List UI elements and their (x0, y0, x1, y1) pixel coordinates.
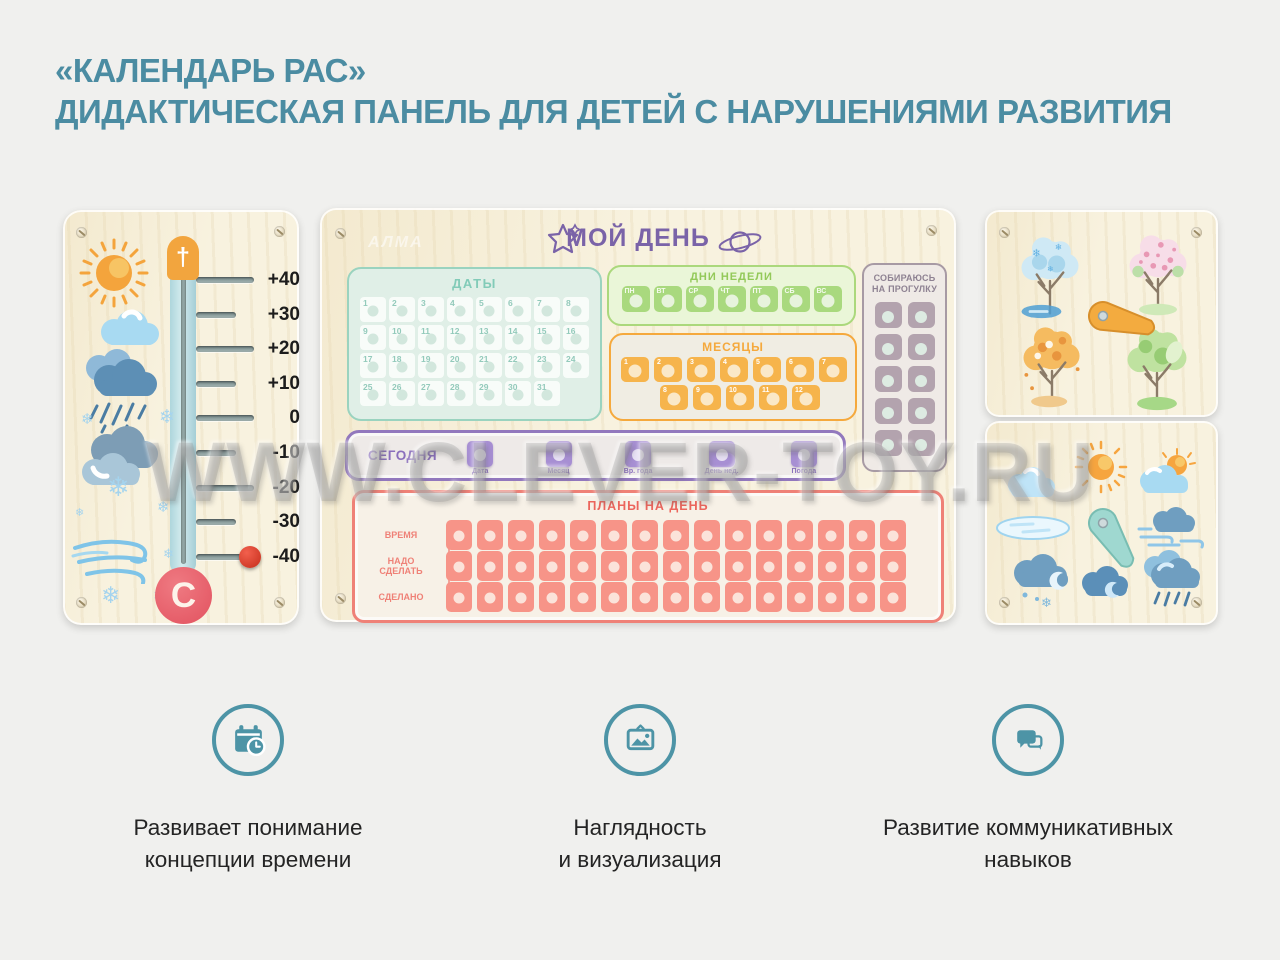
thermo-scale-label: +30 (254, 304, 300, 326)
date-cell[interactable]: 3 (418, 297, 444, 322)
date-cell[interactable]: 31 (534, 381, 560, 406)
peg-hole (882, 407, 894, 419)
date-cell[interactable]: 7 (534, 297, 560, 322)
peg-hole (734, 393, 747, 406)
date-cell[interactable]: 23 (534, 353, 560, 378)
walk-cell[interactable] (908, 430, 935, 456)
walk-cell[interactable] (908, 366, 935, 392)
months-row-1: 1234567 (611, 357, 855, 382)
plan-cell[interactable] (601, 520, 627, 550)
peg-hole (915, 439, 927, 451)
thermo-tick--40: -40 (196, 547, 254, 567)
feature-communication: Развитие коммуникативных навыков (818, 704, 1238, 876)
peg-hole (888, 531, 899, 542)
peg-hole (578, 562, 589, 573)
dates-grid: 1234567891011121314151617181920212223242… (349, 297, 600, 406)
date-cell[interactable]: 21 (476, 353, 502, 378)
peg-hole (857, 593, 868, 604)
today-slots: ДатаМесяцВр. годаДень нед.Погода (441, 441, 843, 475)
date-cell[interactable]: 17 (360, 353, 386, 378)
peg-hole (915, 407, 927, 419)
today-slot-label: Месяц (548, 468, 570, 475)
plan-cell[interactable] (849, 551, 875, 581)
walk-cell[interactable] (908, 398, 935, 424)
plan-cell[interactable] (446, 582, 472, 612)
date-cell[interactable]: 6 (505, 297, 531, 322)
peg-hole (733, 562, 744, 573)
date-cell[interactable]: 8 (563, 297, 589, 322)
peg-hole (578, 593, 589, 604)
plan-cell[interactable] (694, 551, 720, 581)
date-cell[interactable]: 25 (360, 381, 386, 406)
peg-hole (485, 531, 496, 542)
peg-hole (455, 306, 466, 317)
weekday-cell[interactable]: ПТ (750, 286, 778, 312)
peg-hole (455, 334, 466, 345)
peg-hole (426, 390, 437, 401)
peg-hole (761, 365, 774, 378)
peg-hole (757, 294, 770, 307)
peg-hole (484, 334, 495, 345)
thermo-tick--10: -10 (196, 443, 236, 463)
date-cell[interactable]: 5 (476, 297, 502, 322)
peg-hole (571, 306, 582, 317)
peg-hole (764, 562, 775, 573)
weekday-cell[interactable]: ВТ (654, 286, 682, 312)
snowflake-icon (107, 472, 130, 503)
plan-cell[interactable] (632, 551, 658, 581)
weekdays-grid: ПНВТСРЧТПТСБВС (609, 286, 854, 312)
month-cell[interactable]: 3 (687, 357, 715, 382)
today-peg[interactable] (709, 441, 735, 467)
peg-hole (547, 531, 558, 542)
peg-hole (661, 294, 674, 307)
date-cell[interactable]: 15 (534, 325, 560, 350)
today-peg[interactable] (546, 441, 572, 467)
plan-cell[interactable] (849, 582, 875, 612)
peg-hole (794, 365, 807, 378)
plan-cell[interactable] (725, 551, 751, 581)
date-cell-label: 6 (508, 298, 513, 308)
today-title: СЕГОДНЯ (348, 448, 441, 463)
month-cell[interactable]: 7 (819, 357, 847, 382)
peg-hole (609, 562, 620, 573)
peg-hole (733, 593, 744, 604)
walk-section: СОБИРАЮСЬ НА ПРОГУЛКУ (862, 263, 947, 472)
peg-hole (513, 334, 524, 345)
plan-cell[interactable] (601, 582, 627, 612)
month-cell[interactable]: 9 (693, 385, 721, 410)
plan-cell[interactable] (725, 520, 751, 550)
date-cell-label: 9 (363, 326, 368, 336)
plan-cell[interactable] (756, 551, 782, 581)
peg-hole (485, 593, 496, 604)
plan-cell[interactable] (818, 520, 844, 550)
walk-title-line2: НА ПРОГУЛКУ (864, 284, 945, 295)
month-cell[interactable]: 5 (753, 357, 781, 382)
walk-cell[interactable] (908, 334, 935, 360)
weekday-cell[interactable]: СР (686, 286, 714, 312)
screw-icon (274, 226, 285, 237)
weekdays-section: ДНИ НЕДЕЛИ ПНВТСРЧТПТСБВС (607, 265, 856, 326)
svg-text:❄: ❄ (1041, 595, 1052, 610)
peg-hole (800, 393, 813, 406)
weekday-cell[interactable]: ВС (814, 286, 842, 312)
peg-hole (397, 362, 408, 373)
month-cell[interactable]: 12 (792, 385, 820, 410)
plans-row: НАДО СДЕЛАТЬ (369, 550, 931, 581)
peg-hole (397, 390, 408, 401)
page-title-line1: «КАЛЕНДАРЬ РАС» (55, 50, 1172, 91)
thermometer-slot (181, 272, 186, 564)
date-cell[interactable]: 13 (476, 325, 502, 350)
snowflake-icon (75, 506, 84, 519)
peg-hole (640, 562, 651, 573)
today-peg[interactable] (467, 441, 493, 467)
peg-hole (702, 562, 713, 573)
walk-cell[interactable] (875, 430, 902, 456)
today-slot-Дата: Дата (467, 441, 493, 475)
plans-title: ПЛАНЫ НА ДЕНЬ (355, 499, 941, 513)
date-cell-label: 7 (537, 298, 542, 308)
saturn-doodle-icon (716, 226, 764, 258)
plan-cell[interactable] (663, 551, 689, 581)
plans-row-label: НАДО СДЕЛАТЬ (369, 556, 433, 576)
month-cell[interactable]: 11 (759, 385, 787, 410)
thermo-groove (196, 485, 254, 491)
calendar-clock-icon (212, 704, 284, 776)
month-cell[interactable]: 10 (726, 385, 754, 410)
plan-cell[interactable] (880, 520, 906, 550)
peg-hole (609, 593, 620, 604)
plan-cell[interactable] (446, 520, 472, 550)
plan-cell[interactable] (880, 582, 906, 612)
today-slot-label: Вр. года (624, 468, 653, 475)
date-cell[interactable]: 30 (505, 381, 531, 406)
thermo-groove (196, 381, 236, 387)
peg-hole (484, 390, 495, 401)
date-cell-label: 4 (450, 298, 455, 308)
peg-hole (547, 562, 558, 573)
peg-hole (454, 531, 465, 542)
peg-hole (513, 362, 524, 373)
weekday-cell[interactable]: ПН (622, 286, 650, 312)
thermo-groove (196, 312, 236, 318)
weather-arrow-spinner[interactable] (1077, 493, 1163, 579)
peg-hole (826, 531, 837, 542)
svg-text:❄: ❄ (1055, 242, 1062, 252)
plan-cell[interactable] (539, 520, 565, 550)
peg-hole (455, 362, 466, 373)
plan-cell[interactable] (508, 582, 534, 612)
peg-hole (826, 562, 837, 573)
peg-hole (640, 531, 651, 542)
date-cell[interactable]: 22 (505, 353, 531, 378)
peg-hole (484, 362, 495, 373)
plan-cell[interactable] (570, 551, 596, 581)
thermo-tick-0: 0 (196, 408, 254, 428)
plan-cell[interactable] (570, 582, 596, 612)
plan-cell[interactable] (663, 520, 689, 550)
month-cell-label: 2 (657, 359, 661, 366)
peg-hole (542, 390, 553, 401)
sun-icon (1073, 439, 1129, 495)
months-row-2: 89101112 (611, 385, 855, 410)
plan-cell[interactable] (477, 520, 503, 550)
month-cell[interactable]: 8 (660, 385, 688, 410)
peg-hole (368, 334, 379, 345)
star-doodle-icon (544, 221, 584, 259)
thermo-groove (196, 450, 236, 456)
plan-cell[interactable] (694, 520, 720, 550)
screw-icon (76, 597, 87, 608)
plan-cell[interactable] (601, 551, 627, 581)
peg-hole (795, 562, 806, 573)
peg-hole (882, 311, 894, 323)
date-cell[interactable]: 12 (447, 325, 473, 350)
peg-hole (821, 294, 834, 307)
peg-hole (640, 593, 651, 604)
peg-hole (629, 365, 642, 378)
sun-icon (77, 236, 151, 310)
peg-hole (516, 531, 527, 542)
plan-cell[interactable] (787, 551, 813, 581)
peg-hole (882, 343, 894, 355)
date-cell[interactable]: 26 (389, 381, 415, 406)
month-cell-label: 9 (696, 387, 700, 394)
walk-cell[interactable] (908, 302, 935, 328)
peg-hole (542, 362, 553, 373)
peg-hole (725, 294, 738, 307)
peg-hole (455, 390, 466, 401)
thermo-tick-+20: +20 (196, 339, 254, 359)
peg-hole (513, 390, 524, 401)
today-slot-label: Погода (792, 468, 817, 475)
peg-hole (368, 362, 379, 373)
month-cell[interactable]: 1 (621, 357, 649, 382)
peg-hole (671, 562, 682, 573)
today-peg[interactable] (625, 441, 651, 467)
weekday-cell[interactable]: СБ (782, 286, 810, 312)
plan-cell[interactable] (632, 582, 658, 612)
feature-caption: Развитие коммуникативных навыков (818, 812, 1238, 876)
peg-hole (695, 365, 708, 378)
plan-cell[interactable] (508, 520, 534, 550)
plan-cell[interactable] (787, 520, 813, 550)
peg-hole (426, 306, 437, 317)
date-cell[interactable]: 24 (563, 353, 589, 378)
thermometer-cap: † (167, 236, 199, 280)
peg-hole (662, 365, 675, 378)
peg-hole (827, 365, 840, 378)
month-cell[interactable]: 2 (654, 357, 682, 382)
feature-caption: Наглядность и визуализация (430, 812, 850, 876)
walk-title: СОБИРАЮСЬ НА ПРОГУЛКУ (864, 273, 945, 295)
month-cell-label: 6 (789, 359, 793, 366)
peg-hole (542, 306, 553, 317)
thermo-tick--20: -20 (196, 478, 254, 498)
month-cell[interactable]: 6 (786, 357, 814, 382)
seasons-arrow-spinner[interactable] (1081, 290, 1167, 342)
today-slot-Месяц: Месяц (546, 441, 572, 475)
plan-cell[interactable] (818, 551, 844, 581)
date-cell[interactable]: 29 (476, 381, 502, 406)
peg-hole (702, 531, 713, 542)
month-cell-label: 5 (756, 359, 760, 366)
page-title-line2: ДИДАКТИЧЕСКАЯ ПАНЕЛЬ ДЛЯ ДЕТЕЙ С НАРУШЕН… (55, 91, 1172, 132)
my-day-title: МОЙ ДЕНЬ (320, 224, 956, 253)
month-cell-label: 8 (663, 387, 667, 394)
chat-icon (992, 704, 1064, 776)
peg-hole (484, 306, 495, 317)
plans-row-cells (433, 582, 931, 612)
today-slot-Погода: Погода (791, 441, 817, 475)
months-section: МЕСЯЦЫ 1234567 89101112 (609, 333, 857, 421)
snowflake-icon (157, 498, 170, 516)
plan-cell[interactable] (477, 551, 503, 581)
plan-cell[interactable] (694, 582, 720, 612)
plan-cell[interactable] (570, 520, 596, 550)
snowflake-icon (101, 582, 120, 609)
peg-hole (701, 393, 714, 406)
thermo-scale-label: -20 (254, 477, 300, 499)
peg-hole (516, 562, 527, 573)
plans-rows: ВРЕМЯНАДО СДЕЛАТЬСДЕЛАНО (369, 519, 931, 612)
peg-hole (798, 449, 810, 461)
screw-icon (335, 593, 346, 604)
date-cell[interactable]: 19 (418, 353, 444, 378)
date-cell[interactable]: 27 (418, 381, 444, 406)
weekday-cell[interactable]: ЧТ (718, 286, 746, 312)
peg-hole (795, 531, 806, 542)
months-title: МЕСЯЦЫ (611, 340, 855, 354)
feature-caption-line2: и визуализация (430, 844, 850, 876)
peg-hole (609, 531, 620, 542)
peg-hole (826, 593, 837, 604)
plans-row-cells (433, 520, 931, 550)
peg-hole (426, 362, 437, 373)
thermo-scale-label: 0 (254, 407, 300, 429)
peg-hole (454, 562, 465, 573)
thermo-knob[interactable] (239, 546, 261, 568)
month-cell[interactable]: 4 (720, 357, 748, 382)
thermo-tick-+10: +10 (196, 374, 236, 394)
feature-caption-line1: Развивает понимание (38, 812, 458, 844)
date-cell[interactable]: 11 (418, 325, 444, 350)
peg-hole (368, 306, 379, 317)
plan-cell[interactable] (849, 520, 875, 550)
date-cell[interactable]: 28 (447, 381, 473, 406)
plans-section: ПЛАНЫ НА ДЕНЬ ВРЕМЯНАДО СДЕЛАТЬСДЕЛАНО (352, 490, 944, 623)
month-cell-label: 4 (723, 359, 727, 366)
thermo-scale-label: +10 (254, 373, 300, 395)
plan-cell[interactable] (787, 582, 813, 612)
peg-hole (789, 294, 802, 307)
date-cell[interactable]: 10 (389, 325, 415, 350)
peg-hole (671, 593, 682, 604)
plan-cell[interactable] (539, 582, 565, 612)
peg-hole (571, 362, 582, 373)
peg-hole (888, 593, 899, 604)
date-cell[interactable]: 18 (389, 353, 415, 378)
plan-cell[interactable] (508, 551, 534, 581)
walk-cell[interactable] (875, 366, 902, 392)
snow-cloud-moon-icon: ❄ (1001, 549, 1077, 611)
month-cell-label: 1 (624, 359, 628, 366)
weather-panel: ❄ (985, 421, 1218, 625)
peg-hole (571, 334, 582, 345)
today-peg[interactable] (791, 441, 817, 467)
date-cell[interactable]: 14 (505, 325, 531, 350)
thermo-scale-label: -30 (254, 511, 300, 533)
thermo-groove (196, 277, 254, 283)
plan-cell[interactable] (818, 582, 844, 612)
plan-cell[interactable] (756, 520, 782, 550)
peg-hole (764, 531, 775, 542)
page-title: «КАЛЕНДАРЬ РАС» ДИДАКТИЧЕСКАЯ ПАНЕЛЬ ДЛЯ… (55, 50, 1172, 132)
peg-hole (632, 449, 644, 461)
date-cell[interactable]: 20 (447, 353, 473, 378)
walk-cell[interactable] (875, 302, 902, 328)
ice-puddle-icon (993, 513, 1073, 543)
seasons-panel: ❄❄❄ (985, 210, 1218, 417)
plan-cell[interactable] (539, 551, 565, 581)
plans-row: СДЕЛАНО (369, 581, 931, 612)
date-cell[interactable]: 2 (389, 297, 415, 322)
peg-hole (857, 562, 868, 573)
walk-cell[interactable] (875, 398, 902, 424)
picture-icon (604, 704, 676, 776)
plan-cell[interactable] (725, 582, 751, 612)
feature-time-concept: Развивает понимание концепции времени (38, 704, 458, 876)
thermometer-panel: † C +40+30+20+100-10-20-30-40 (63, 210, 299, 625)
thermo-groove (196, 346, 254, 352)
snowflake-icon (81, 410, 94, 428)
feature-caption-line1: Развитие коммуникативных (818, 812, 1238, 844)
date-cell[interactable]: 4 (447, 297, 473, 322)
date-cell[interactable]: 9 (360, 325, 386, 350)
peg-hole (671, 531, 682, 542)
plan-cell[interactable] (632, 520, 658, 550)
date-cell-label: 1 (363, 298, 368, 308)
peg-hole (426, 334, 437, 345)
walk-title-line1: СОБИРАЮСЬ (864, 273, 945, 284)
peg-hole (513, 306, 524, 317)
plan-cell[interactable] (477, 582, 503, 612)
feature-caption: Развивает понимание концепции времени (38, 812, 458, 876)
plans-row: ВРЕМЯ (369, 519, 931, 550)
peg-hole (454, 593, 465, 604)
feature-caption-line2: навыков (818, 844, 1238, 876)
peg-hole (764, 593, 775, 604)
plan-cell[interactable] (756, 582, 782, 612)
today-section: СЕГОДНЯ ДатаМесяцВр. годаДень нед.Погода (345, 430, 846, 481)
plan-cell[interactable] (446, 551, 472, 581)
page: «КАЛЕНДАРЬ РАС» ДИДАКТИЧЕСКАЯ ПАНЕЛЬ ДЛЯ… (0, 0, 1280, 960)
peg-hole (693, 294, 706, 307)
feature-caption-line2: концепции времени (38, 844, 458, 876)
plan-cell[interactable] (880, 551, 906, 581)
peg-hole (733, 531, 744, 542)
date-cell[interactable]: 1 (360, 297, 386, 322)
peg-hole (888, 562, 899, 573)
plan-cell[interactable] (663, 582, 689, 612)
date-cell[interactable]: 16 (563, 325, 589, 350)
walk-cell[interactable] (875, 334, 902, 360)
peg-hole (728, 365, 741, 378)
peg-hole (882, 439, 894, 451)
peg-hole (474, 449, 486, 461)
